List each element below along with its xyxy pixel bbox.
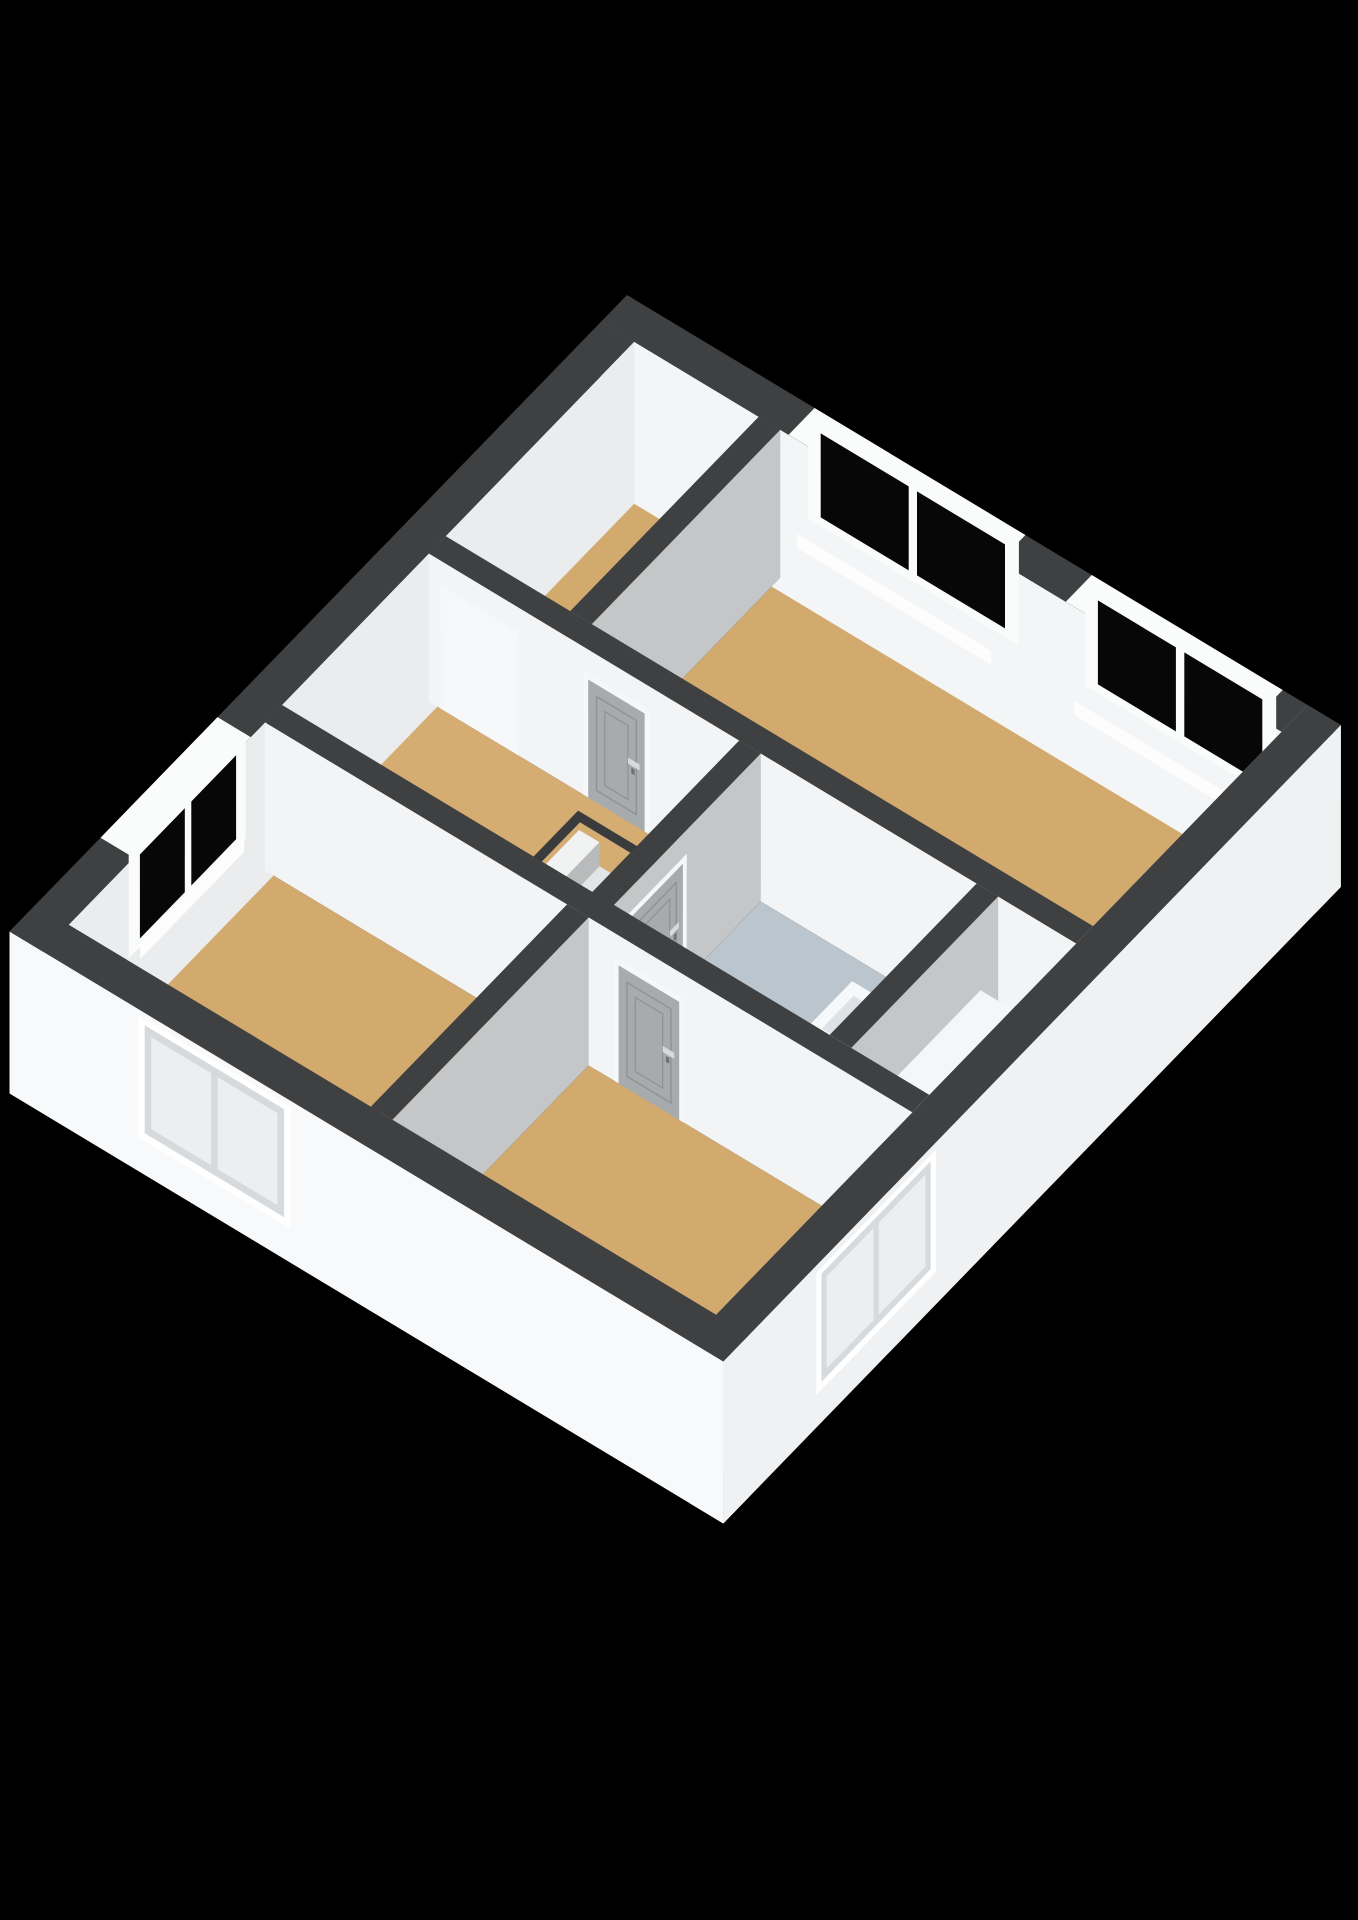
- render-canvas: [0, 0, 1358, 1920]
- door-bedroom-bottom-right-jamb-2: [679, 996, 684, 1123]
- doorway-bedroom-top-left-jamb-1: [440, 585, 445, 712]
- door-bedroom-bottom-right-jamb-1: [614, 956, 619, 1083]
- floorplan-3d-render: [0, 0, 1358, 1920]
- doorway-bedroom-top-left-jamb-2: [514, 629, 519, 756]
- door-bedroom-main-jamb-2: [645, 708, 650, 835]
- wall-exterior-sw-face-e: [723, 1335, 749, 1524]
- door-bedroom-main-jamb-1: [583, 671, 588, 798]
